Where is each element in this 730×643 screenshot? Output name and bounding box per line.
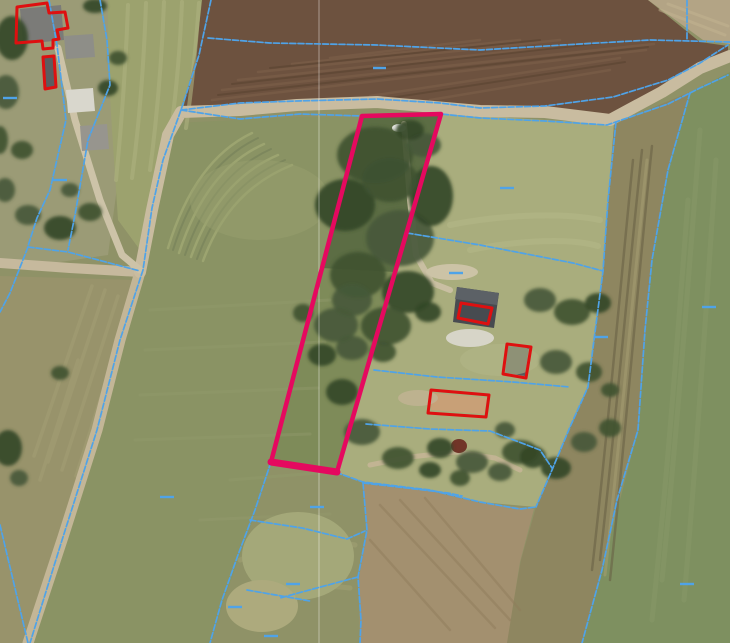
tree-blob	[336, 336, 368, 360]
patch-red-hut	[451, 439, 467, 453]
tree-blob	[554, 299, 590, 325]
tree-blob	[495, 422, 515, 438]
tree-blob	[415, 302, 441, 322]
tree-blob	[601, 383, 619, 397]
tree-blob	[382, 447, 414, 469]
patch-field-top-light	[190, 160, 330, 240]
tree-blob	[571, 432, 597, 452]
patch-yard-light-patch	[446, 329, 494, 347]
tree-blob	[15, 205, 41, 225]
tree-blob	[419, 462, 441, 478]
patch-farm-roof-gray	[80, 124, 109, 151]
tree-blob	[11, 141, 33, 159]
tree-blob	[450, 470, 470, 486]
tree-blob	[520, 446, 546, 468]
tree-blob	[524, 288, 556, 312]
tree-blob	[396, 120, 424, 140]
map-viewport[interactable]	[0, 0, 730, 643]
tree-blob	[61, 183, 79, 197]
tree-blob	[427, 438, 453, 458]
tree-blob	[456, 451, 488, 473]
tree-blob	[540, 350, 572, 374]
tree-blob	[599, 419, 621, 437]
tree-blob	[51, 366, 69, 380]
tree-blob	[362, 158, 418, 202]
patch-farm-roof-annex	[64, 34, 95, 59]
tree-blob	[488, 463, 512, 481]
tree-blob	[78, 203, 102, 221]
tree-blob	[326, 379, 358, 405]
tree-blob	[361, 307, 411, 345]
tree-blob	[308, 344, 336, 366]
tree-blob	[109, 51, 127, 65]
tree-blob	[332, 284, 372, 316]
patch-farm-roof-white	[66, 88, 95, 113]
tree-blob	[98, 80, 118, 96]
map-canvas	[0, 0, 730, 643]
tree-blob	[10, 470, 28, 486]
